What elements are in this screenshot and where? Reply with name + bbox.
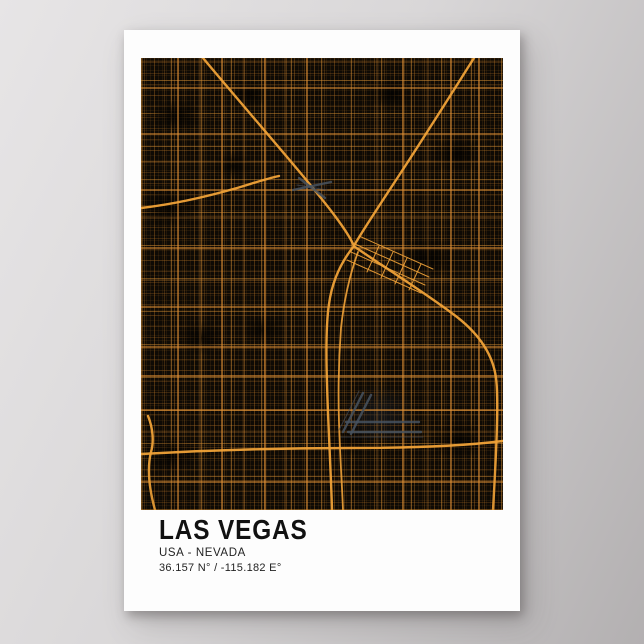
- poster-title: LAS VEGAS: [159, 517, 308, 543]
- map-vignette: [141, 58, 503, 510]
- poster-coordinates: 36.157 N° / -115.182 E°: [159, 562, 330, 575]
- wall-background: LAS VEGAS USA - NEVADA 36.157 N° / -115.…: [0, 0, 644, 644]
- map-poster: LAS VEGAS USA - NEVADA 36.157 N° / -115.…: [124, 30, 520, 611]
- poster-subtitle: USA - NEVADA: [159, 547, 330, 560]
- map-canvas: [141, 58, 503, 510]
- caption-block: LAS VEGAS USA - NEVADA 36.157 N° / -115.…: [159, 517, 330, 575]
